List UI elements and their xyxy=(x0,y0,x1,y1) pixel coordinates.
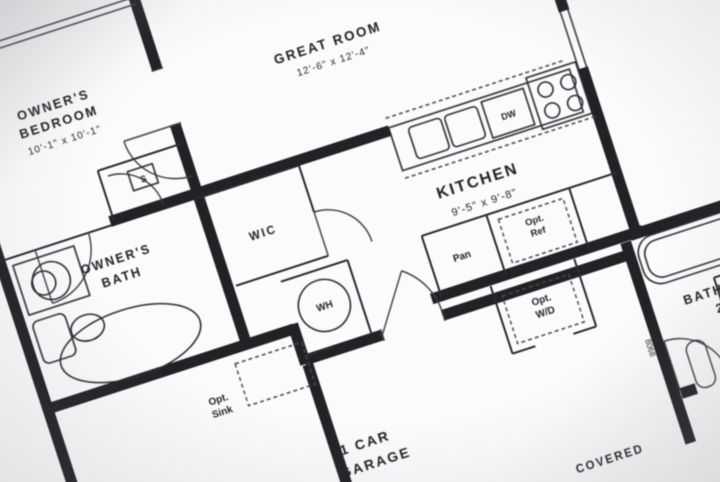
wic-label: WIC xyxy=(248,224,279,244)
kitchen-label: KITCHEN 9'-5" x 9'-8" xyxy=(435,160,527,221)
kitchen-counter xyxy=(389,69,584,171)
owners-bedroom-label: OWNER'S BEDROOM 10'-1" x 10'-1" xyxy=(12,85,106,159)
bath2-label: BATH 2 xyxy=(682,282,720,325)
dishwasher-label: DW xyxy=(500,108,518,122)
floor-plan-photo: GREAT ROOM 12'-6" x 12'-4" OWNER'S BEDRO… xyxy=(0,0,720,482)
floor-plan-drawing: GREAT ROOM 12'-6" x 12'-4" OWNER'S BEDRO… xyxy=(0,0,720,482)
svg-text:2: 2 xyxy=(714,300,720,316)
covered-patio-label: COVERED xyxy=(574,443,645,476)
pantry-label: Pan xyxy=(452,249,473,265)
opt-sink-label: Opt. Sink xyxy=(207,392,235,421)
optional-dashed-items xyxy=(177,56,657,429)
opt-wd-label: Opt. W/D xyxy=(530,292,557,321)
shelf-label: S xyxy=(139,173,148,184)
water-heater-label: WH xyxy=(315,299,334,315)
exterior-and-interior-walls xyxy=(0,0,720,482)
opt-ref-label: Opt. Ref xyxy=(524,213,549,241)
vanity-sink xyxy=(13,246,90,315)
garage-label: 1 CAR GARAGE xyxy=(331,422,413,481)
great-room-label: GREAT ROOM 12'-6" x 12'-4" xyxy=(272,19,389,85)
